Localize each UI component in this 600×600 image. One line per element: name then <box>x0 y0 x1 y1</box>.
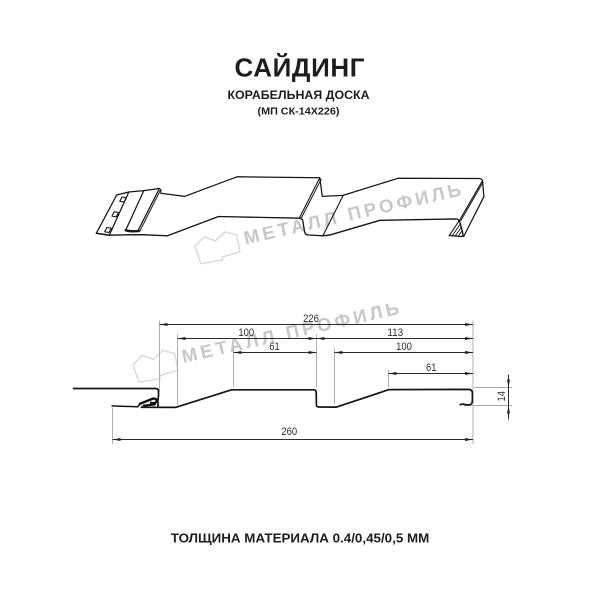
svg-text:100: 100 <box>396 341 412 353</box>
svg-text:КОРАБЕЛЬНАЯ ДОСКА: КОРАБЕЛЬНАЯ ДОСКА <box>228 88 370 102</box>
svg-text:САЙДИНГ: САЙДИНГ <box>235 52 365 82</box>
svg-text:100: 100 <box>238 327 254 339</box>
svg-text:ТОЛЩИНА МАТЕРИАЛА 0.4/0,45/0,5: ТОЛЩИНА МАТЕРИАЛА 0.4/0,45/0,5 ММ <box>171 530 430 545</box>
svg-text:226: 226 <box>303 313 319 325</box>
svg-text:113: 113 <box>387 327 403 339</box>
svg-text:14: 14 <box>496 391 508 401</box>
svg-text:(МП СК-14Х226): (МП СК-14Х226) <box>258 106 340 117</box>
svg-text:260: 260 <box>281 426 297 438</box>
svg-text:61: 61 <box>426 362 436 374</box>
svg-text:61: 61 <box>269 341 279 353</box>
